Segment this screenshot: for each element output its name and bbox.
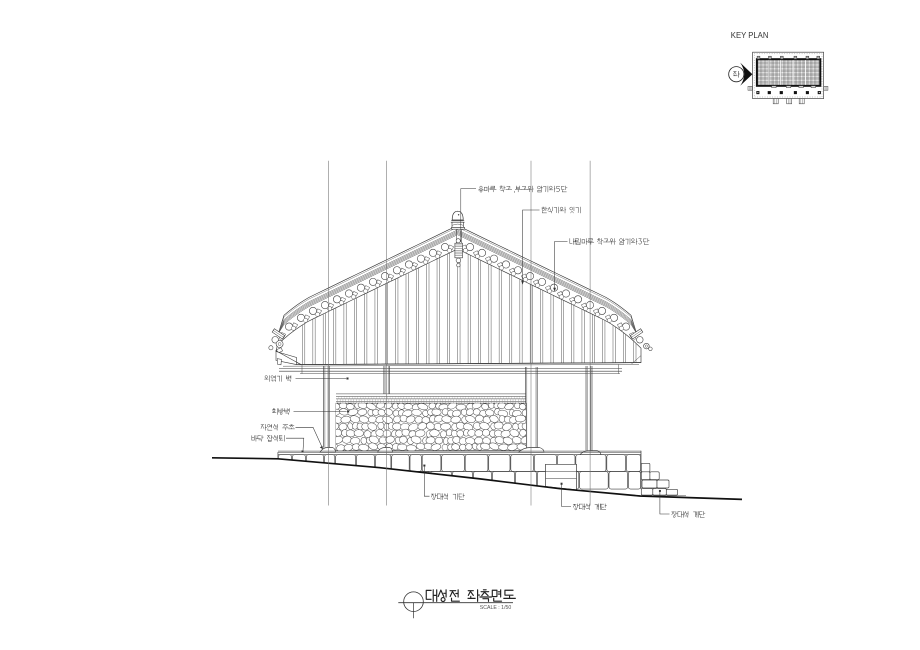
svg-text:KEY PLAN: KEY PLAN xyxy=(731,31,769,40)
svg-text:SCALE : 1/50: SCALE : 1/50 xyxy=(480,605,512,611)
